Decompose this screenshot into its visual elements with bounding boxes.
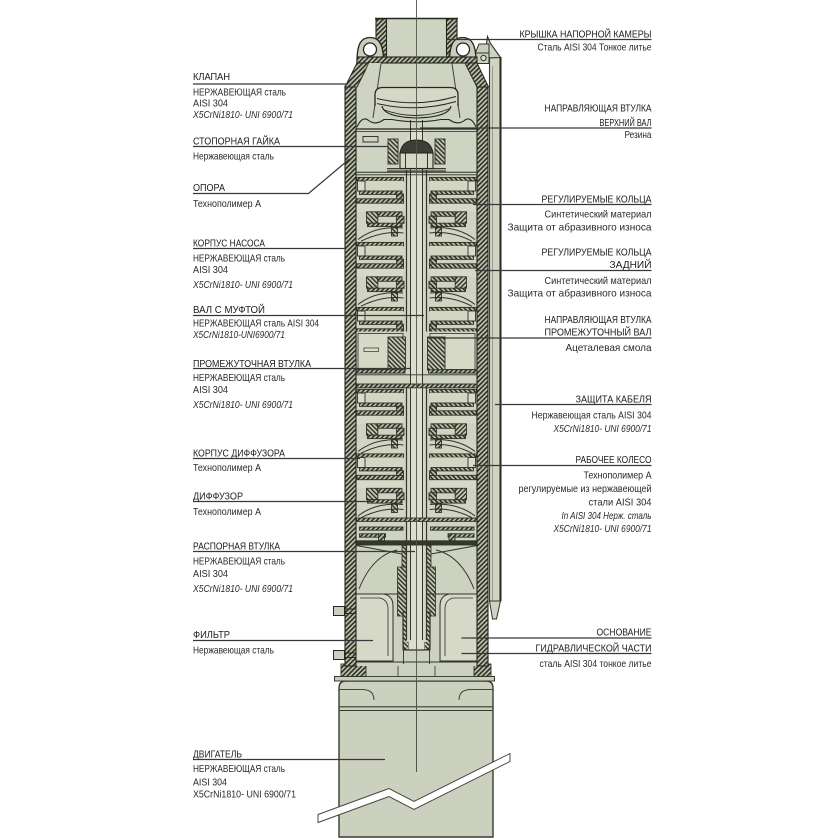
svg-text:Нержавеющая сталь: Нержавеющая сталь bbox=[193, 646, 274, 657]
svg-text:X5CrNi1810- UNI 6900/71: X5CrNi1810- UNI 6900/71 bbox=[553, 524, 652, 535]
svg-text:X5CrNi1810- UNI 6900/71: X5CrNi1810- UNI 6900/71 bbox=[193, 790, 296, 801]
svg-text:КРЫШКА НАПОРНОЙ КАМЕРЫ: КРЫШКА НАПОРНОЙ КАМЕРЫ bbox=[520, 28, 652, 41]
svg-text:ЗАЩИТА КАБЕЛЯ: ЗАЩИТА КАБЕЛЯ bbox=[576, 395, 652, 406]
svg-text:ПРОМЕЖУТОЧНЫЙ ВАЛ: ПРОМЕЖУТОЧНЫЙ ВАЛ bbox=[545, 326, 652, 339]
svg-text:КОРПУС ДИФФУЗОРА: КОРПУС ДИФФУЗОРА bbox=[193, 449, 285, 460]
svg-text:X5CrNi1810-UNI6900/71: X5CrNi1810-UNI6900/71 bbox=[192, 330, 285, 341]
svg-text:НЕРЖАВЕЮЩАЯ сталь: НЕРЖАВЕЮЩАЯ сталь bbox=[193, 557, 285, 568]
svg-text:AISI 304: AISI 304 bbox=[193, 99, 228, 110]
svg-text:сталь AISI 304 тонкое литье: сталь AISI 304 тонкое литье bbox=[540, 659, 652, 670]
svg-text:НЕРЖАВЕЮЩАЯ сталь AISI 304: НЕРЖАВЕЮЩАЯ сталь AISI 304 bbox=[193, 319, 319, 330]
svg-text:ЗАДНИЙ: ЗАДНИЙ bbox=[610, 258, 652, 271]
svg-text:ВАЛ С МУФТОЙ: ВАЛ С МУФТОЙ bbox=[193, 303, 265, 316]
svg-text:НЕРЖАВЕЮЩАЯ сталь: НЕРЖАВЕЮЩАЯ сталь bbox=[193, 254, 285, 265]
svg-text:ДВИГАТЕЛЬ: ДВИГАТЕЛЬ bbox=[193, 750, 242, 761]
svg-text:Сталь AISI 304 Тонкое литье: Сталь AISI 304 Тонкое литье bbox=[538, 43, 652, 54]
svg-text:Резина: Резина bbox=[625, 130, 652, 141]
svg-text:Синтетический материал: Синтетический материал bbox=[545, 276, 652, 287]
svg-text:X5CrNi1810- UNI 6900/71: X5CrNi1810- UNI 6900/71 bbox=[192, 110, 293, 121]
svg-text:РАБОЧЕЕ КОЛЕСО: РАБОЧЕЕ КОЛЕСО bbox=[576, 455, 652, 466]
svg-text:РЕГУЛИРУЕМЫЕ КОЛЬЦА: РЕГУЛИРУЕМЫЕ КОЛЬЦА bbox=[542, 248, 652, 259]
svg-text:ПРОМЕЖУТОЧНАЯ ВТУЛКА: ПРОМЕЖУТОЧНАЯ ВТУЛКА bbox=[193, 359, 311, 370]
svg-text:In AISI 304 Нерж. сталь: In AISI 304 Нерж. сталь bbox=[562, 511, 652, 522]
svg-text:Синтетический материал: Синтетический материал bbox=[545, 210, 652, 221]
svg-text:ОПОРА: ОПОРА bbox=[193, 183, 225, 194]
svg-text:Технополимер А: Технополимер А bbox=[193, 463, 261, 474]
svg-text:НЕРЖАВЕЮЩАЯ сталь: НЕРЖАВЕЮЩАЯ сталь bbox=[193, 88, 286, 99]
svg-text:Нержавеющая сталь: Нержавеющая сталь bbox=[193, 152, 274, 163]
svg-text:Технополимер А: Технополимер А bbox=[584, 471, 652, 482]
svg-text:Ацеталевая смола: Ацеталевая смола bbox=[566, 343, 652, 354]
svg-text:СТОПОРНАЯ ГАЙКА: СТОПОРНАЯ ГАЙКА bbox=[193, 134, 280, 147]
svg-text:ДИФФУЗОР: ДИФФУЗОР bbox=[193, 492, 243, 503]
svg-text:РЕГУЛИРУЕМЫЕ КОЛЬЦА: РЕГУЛИРУЕМЫЕ КОЛЬЦА bbox=[542, 195, 652, 206]
svg-text:ФИЛЬТР: ФИЛЬТР bbox=[193, 630, 230, 641]
svg-text:РАСПОРНАЯ ВТУЛКА: РАСПОРНАЯ ВТУЛКА bbox=[193, 542, 280, 553]
svg-text:Технополимер А: Технополимер А bbox=[193, 199, 261, 210]
svg-text:AISI 304: AISI 304 bbox=[193, 385, 228, 396]
svg-text:ВЕРХНИЙ ВАЛ: ВЕРХНИЙ ВАЛ bbox=[600, 116, 652, 129]
svg-text:AISI 304: AISI 304 bbox=[193, 265, 228, 276]
svg-text:регулируемые из нержавеющей: регулируемые из нержавеющей bbox=[519, 484, 652, 495]
svg-text:AISI 304: AISI 304 bbox=[193, 569, 228, 580]
svg-text:стали AISI 304: стали AISI 304 bbox=[589, 498, 652, 509]
svg-text:КЛАПАН: КЛАПАН bbox=[193, 72, 230, 83]
svg-text:НАПРАВЛЯЮЩАЯ ВТУЛКА: НАПРАВЛЯЮЩАЯ ВТУЛКА bbox=[545, 315, 652, 326]
svg-text:ОСНОВАНИЕ: ОСНОВАНИЕ bbox=[597, 628, 652, 639]
svg-text:Защита от абразивного износа: Защита от абразивного износа bbox=[508, 288, 652, 300]
svg-text:AISI 304: AISI 304 bbox=[193, 778, 227, 789]
svg-text:X5CrNi1810- UNI 6900/71: X5CrNi1810- UNI 6900/71 bbox=[192, 584, 293, 595]
svg-text:X5CrNi1810- UNI 6900/71: X5CrNi1810- UNI 6900/71 bbox=[192, 400, 293, 411]
svg-text:X5CrNi1810- UNI 6900/71: X5CrNi1810- UNI 6900/71 bbox=[553, 424, 652, 435]
svg-text:Защита от абразивного износа: Защита от абразивного износа bbox=[508, 222, 652, 234]
svg-text:Нержавеющая сталь AISI 304: Нержавеющая сталь AISI 304 bbox=[532, 411, 652, 422]
svg-text:ГИДРАВЛИЧЕСКОЙ ЧАСТИ: ГИДРАВЛИЧЕСКОЙ ЧАСТИ bbox=[536, 642, 652, 655]
svg-text:Технополимер А: Технополимер А bbox=[193, 507, 261, 518]
svg-text:НЕРЖАВЕЮЩАЯ сталь: НЕРЖАВЕЮЩАЯ сталь bbox=[193, 373, 285, 384]
svg-text:КОРПУС НАСОСА: КОРПУС НАСОСА bbox=[193, 239, 265, 250]
svg-text:НЕРЖАВЕЮЩАЯ сталь: НЕРЖАВЕЮЩАЯ сталь bbox=[193, 764, 285, 775]
svg-text:X5CrNi1810- UNI 6900/71: X5CrNi1810- UNI 6900/71 bbox=[192, 280, 293, 291]
svg-text:НАПРАВЛЯЮЩАЯ ВТУЛКА: НАПРАВЛЯЮЩАЯ ВТУЛКА bbox=[545, 104, 652, 115]
